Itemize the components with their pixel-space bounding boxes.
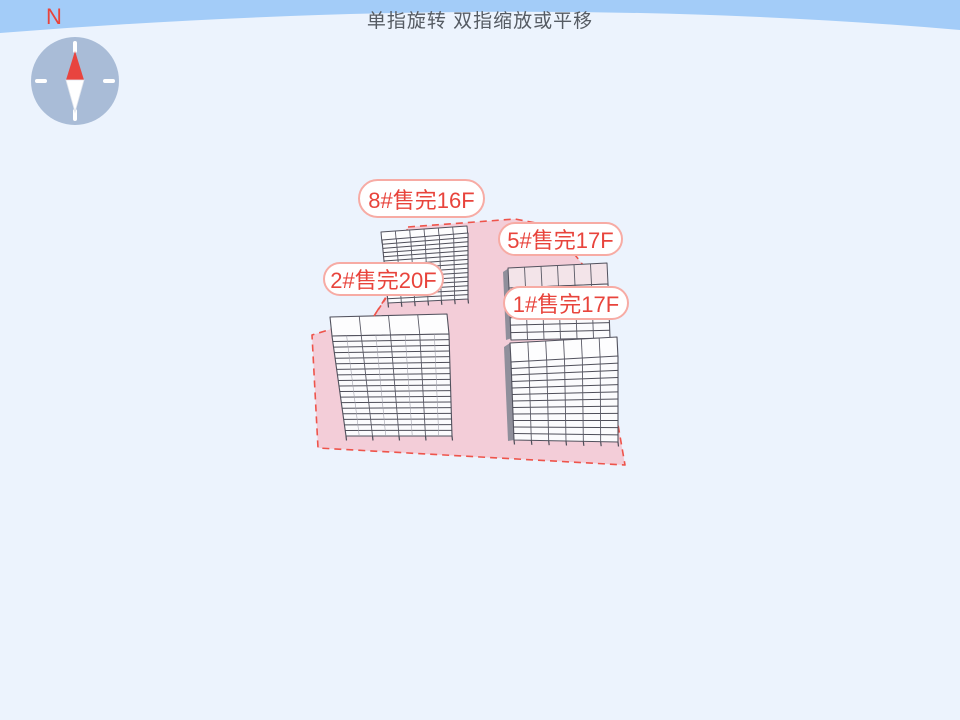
building-label-8[interactable]: 8#售完16F xyxy=(358,179,485,218)
building-2[interactable] xyxy=(330,314,453,441)
compass-icon xyxy=(30,36,120,126)
gesture-hint: 单指旋转 双指缩放或平移 xyxy=(0,6,960,33)
building-label-1[interactable]: 1#售完17F xyxy=(503,286,629,320)
building-label-2[interactable]: 2#售完20F xyxy=(323,262,444,296)
sales-map-app: 单指旋转 双指缩放或平移 N 8#售完16F 5#售完17F 2#售完20F 1… xyxy=(0,0,960,720)
site-map-canvas[interactable] xyxy=(0,0,960,720)
building-1[interactable] xyxy=(504,337,619,447)
building-label-5[interactable]: 5#售完17F xyxy=(498,222,623,256)
compass-north-label: N xyxy=(46,4,106,30)
compass[interactable] xyxy=(30,36,120,126)
